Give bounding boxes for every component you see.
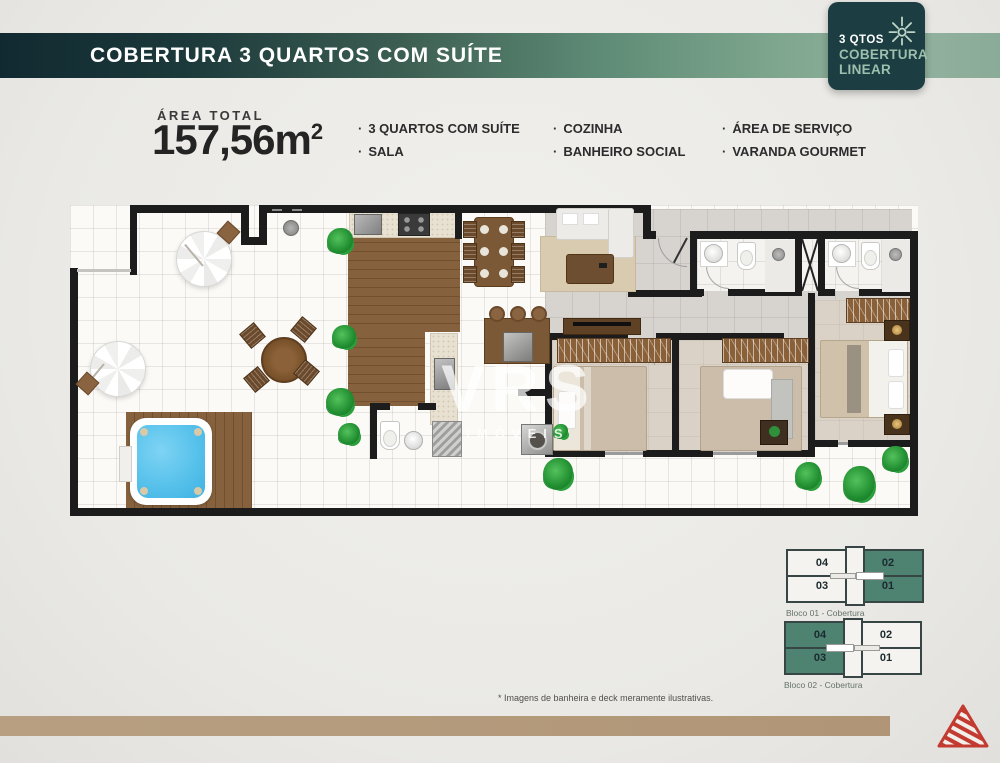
unit-label: 01 (866, 580, 910, 592)
toilet (861, 242, 880, 270)
wall (643, 450, 713, 457)
toilet (737, 242, 756, 270)
wardrobe (722, 338, 809, 363)
sun-icon (885, 14, 919, 48)
dining-table (474, 217, 514, 287)
washing-machine (521, 424, 553, 455)
wall (70, 508, 918, 516)
sofa-chaise (608, 208, 634, 258)
key-rod (830, 573, 856, 579)
wall (130, 205, 248, 213)
counter-sink (434, 358, 455, 390)
toilet (380, 421, 400, 450)
wall (370, 403, 390, 410)
block-01-box: 04 03 02 01 (786, 549, 924, 603)
chair (511, 243, 525, 260)
wall (70, 268, 78, 516)
wall (690, 231, 918, 239)
wall (808, 440, 838, 447)
bed-single (553, 366, 647, 451)
bathroom-sink (832, 244, 851, 263)
tub-steps (119, 446, 132, 482)
key-rod (826, 644, 854, 652)
chair (463, 221, 477, 238)
key-rod (856, 572, 884, 580)
block-02-diagram: 04 03 02 01 Bloco 02 - Cobertura (784, 621, 922, 690)
sink (404, 431, 423, 450)
bottom-bar (0, 716, 890, 736)
bathroom-sink (704, 244, 723, 263)
stool (531, 306, 547, 322)
unit-label: 01 (864, 652, 908, 664)
unit-label: 02 (866, 557, 910, 569)
shower-drain (772, 248, 785, 261)
chair (463, 266, 477, 283)
wall (518, 389, 550, 396)
stove-cooktop (398, 213, 430, 236)
wall (825, 289, 835, 296)
hook (292, 209, 302, 211)
wall (370, 403, 377, 459)
footnote: * Imagens de banheira e deck meramente i… (498, 693, 713, 703)
page-title: COBERTURA 3 QUARTOS COM SUÍTE (90, 44, 503, 68)
shower-drain (889, 248, 902, 261)
stool (489, 306, 505, 322)
key-rod (854, 645, 880, 651)
unit-label: 04 (800, 557, 844, 569)
unit-label: 03 (798, 652, 842, 664)
badge-line1: 3 QTOS (839, 34, 884, 46)
coffee-table (566, 254, 614, 284)
wall (848, 440, 918, 447)
nightstand (884, 414, 910, 435)
flyer-page: COBERTURA 3 QUARTOS COM SUÍTE 3 QTOS COB… (0, 0, 1000, 763)
block-02-box: 04 03 02 01 (784, 621, 922, 675)
stool (510, 306, 526, 322)
tv-console (563, 318, 641, 335)
nightstand (884, 320, 910, 341)
wall (455, 205, 462, 239)
unit-label: 04 (798, 629, 842, 641)
unit-label: 02 (864, 629, 908, 641)
sliding-door (713, 452, 757, 455)
hook (272, 209, 282, 211)
wall (757, 450, 815, 457)
wall (545, 450, 605, 457)
shaft-x (802, 240, 818, 290)
hot-tub (130, 418, 212, 505)
block-01-label: Bloco 01 - Cobertura (786, 608, 924, 618)
sliding-door (605, 452, 643, 455)
wall (690, 289, 704, 296)
wall (672, 333, 679, 457)
wall (808, 293, 815, 455)
glass-railing (77, 269, 131, 272)
kitchen-island (484, 318, 550, 364)
unit-label: 03 (800, 580, 844, 592)
gourmet-deck (348, 330, 425, 406)
chair (511, 221, 525, 238)
unit-type-badge: 3 QTOS COBERTURA LINEAR (828, 2, 925, 90)
kitchen-sink (354, 214, 382, 235)
wall (910, 231, 918, 516)
chair (511, 266, 525, 283)
wall (818, 238, 825, 296)
wall (130, 205, 137, 275)
badge-line2: COBERTURA (839, 47, 928, 62)
door-opening (838, 442, 848, 445)
company-logo-icon (936, 703, 990, 754)
block-02-label: Bloco 02 - Cobertura (784, 680, 922, 690)
gourmet-deck (348, 234, 460, 332)
wall (690, 238, 697, 295)
outdoor-shower (283, 220, 299, 236)
wall (418, 403, 436, 410)
bed-double (820, 340, 908, 418)
wardrobe (557, 338, 671, 363)
chair (463, 243, 477, 260)
wall (643, 231, 656, 239)
side-table (760, 420, 788, 445)
badge-line3: LINEAR (839, 62, 891, 77)
shower-box (432, 421, 462, 457)
block-01-diagram: 04 03 02 01 Bloco 01 - Cobertura (786, 549, 924, 618)
